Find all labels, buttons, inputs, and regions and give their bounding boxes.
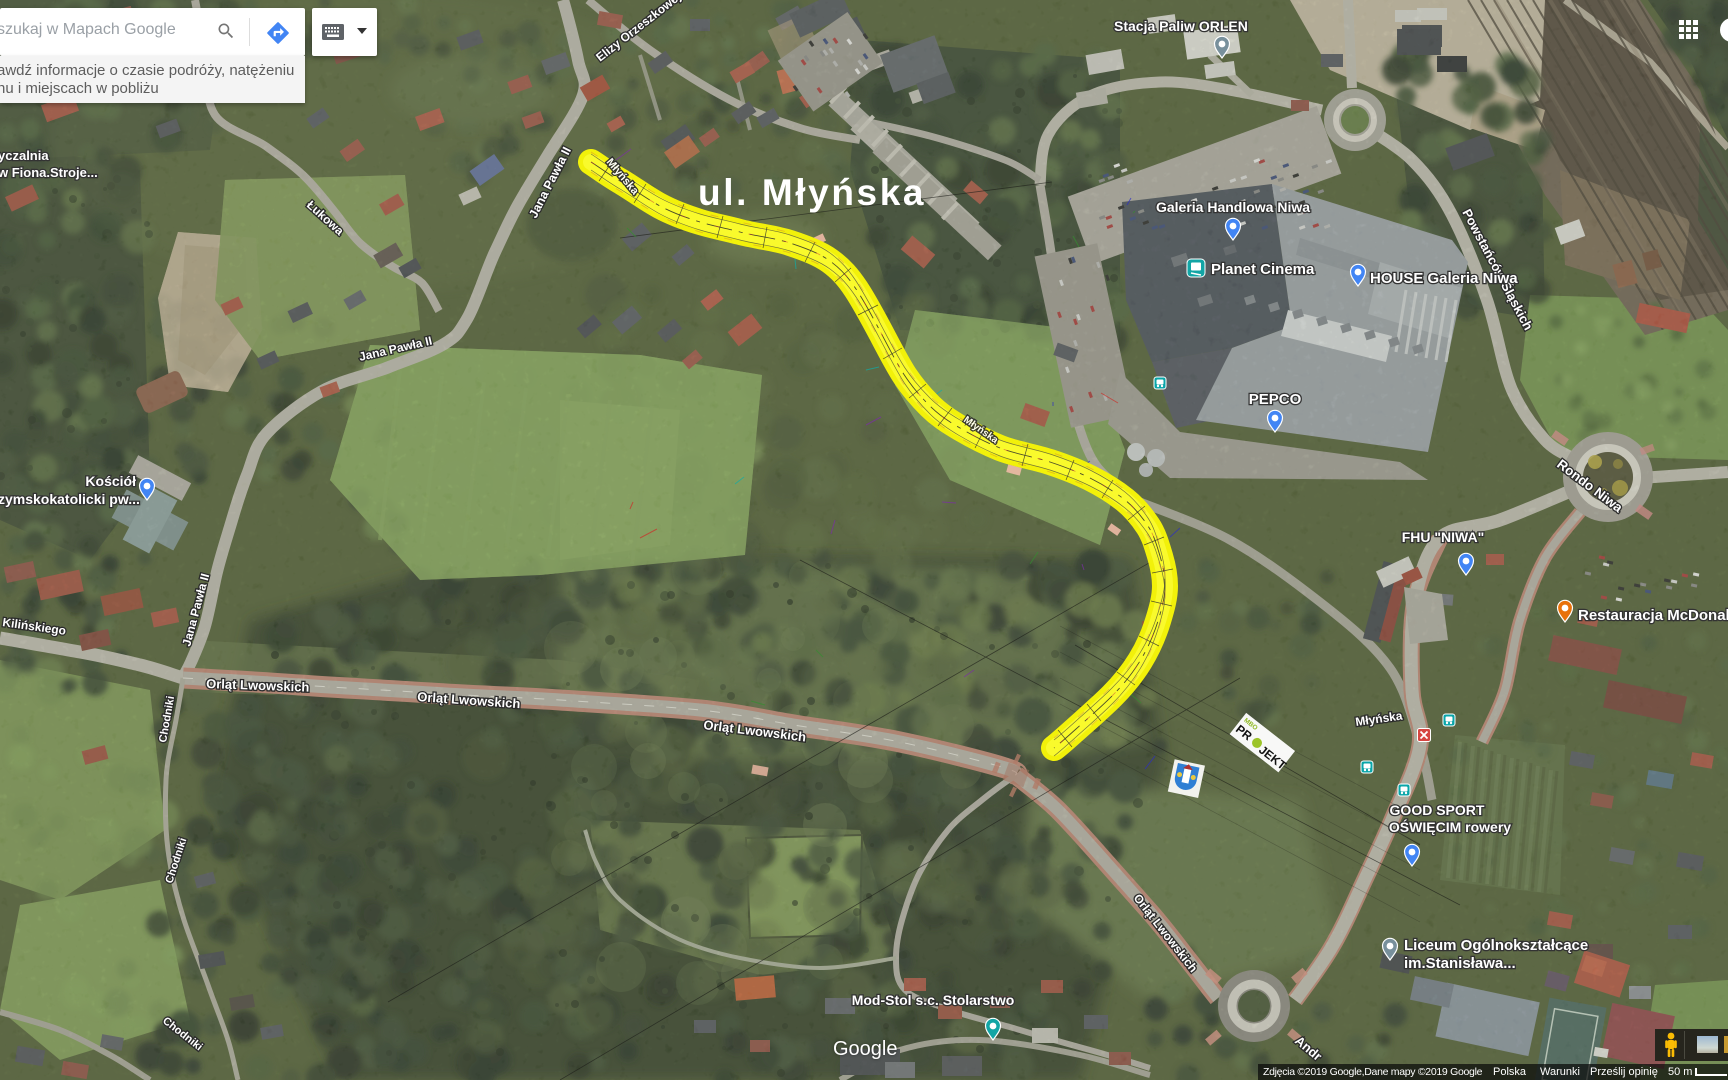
svg-text:Jana Pawła II: Jana Pawła II: [526, 145, 574, 221]
svg-text:Kościół: Kościół: [85, 473, 136, 489]
svg-text:Chodniki: Chodniki: [160, 1015, 204, 1053]
svg-text:Restauracja McDonald: Restauracja McDonald: [1578, 607, 1728, 624]
svg-text:yczalnia: yczalnia: [0, 148, 49, 163]
svg-text:Orląt Lwowskich: Orląt Lwowskich: [1131, 891, 1201, 975]
svg-text:Mod-Stol s.c. Stolarstwo: Mod-Stol s.c. Stolarstwo: [852, 992, 1015, 1008]
svg-text:HOUSE Galeria Niwa: HOUSE Galeria Niwa: [1370, 270, 1518, 287]
svg-text:Łukowa: Łukowa: [304, 198, 347, 239]
svg-text:Elizy Orzeszkowej: Elizy Orzeszkowej: [593, 0, 683, 64]
svg-text:Chodniki: Chodniki: [157, 695, 177, 743]
svg-text:Google: Google: [833, 1038, 898, 1060]
svg-text:zymskokatolicki pw...: zymskokatolicki pw...: [0, 491, 140, 507]
svg-text:FHU "NIWA": FHU "NIWA": [1402, 529, 1485, 545]
svg-text:im.Stanisława...: im.Stanisława...: [1404, 955, 1516, 972]
svg-text:Andr: Andr: [1292, 1033, 1325, 1064]
svg-text:Galeria Handlowa Niwa: Galeria Handlowa Niwa: [1156, 199, 1310, 215]
svg-text:Planet Cinema: Planet Cinema: [1211, 261, 1315, 278]
svg-text:PEPCO: PEPCO: [1249, 391, 1302, 408]
svg-text:ul. Młyńska: ul. Młyńska: [698, 172, 926, 213]
svg-text:Młyńska: Młyńska: [961, 414, 1000, 446]
svg-text:GOOD SPORT: GOOD SPORT: [1390, 802, 1485, 818]
svg-text:Stacja Paliw ORLEN: Stacja Paliw ORLEN: [1114, 18, 1248, 34]
svg-text:Kilińskiego: Kilińskiego: [2, 615, 67, 638]
svg-text:OŚWIĘCIM rowery: OŚWIĘCIM rowery: [1389, 818, 1511, 835]
svg-text:w Fiona.Stroje...: w Fiona.Stroje...: [0, 165, 98, 180]
svg-text:Orląt Lwowskich: Orląt Lwowskich: [703, 717, 807, 744]
svg-text:Chodniki: Chodniki: [163, 836, 189, 884]
svg-text:Liceum Ogólnokształcące: Liceum Ogólnokształcące: [1404, 937, 1588, 954]
svg-text:Orląt Lwowskich: Orląt Lwowskich: [206, 676, 310, 695]
svg-text:Rondo Niwa: Rondo Niwa: [1554, 456, 1626, 515]
svg-text:Jana Pawła II: Jana Pawła II: [358, 333, 434, 363]
svg-text:Orląt Lwowskich: Orląt Lwowskich: [417, 689, 521, 711]
svg-text:Jana Pawła II: Jana Pawła II: [179, 572, 212, 648]
svg-text:Młyńska: Młyńska: [1354, 708, 1403, 728]
svg-text:Młyńska: Młyńska: [604, 156, 642, 198]
